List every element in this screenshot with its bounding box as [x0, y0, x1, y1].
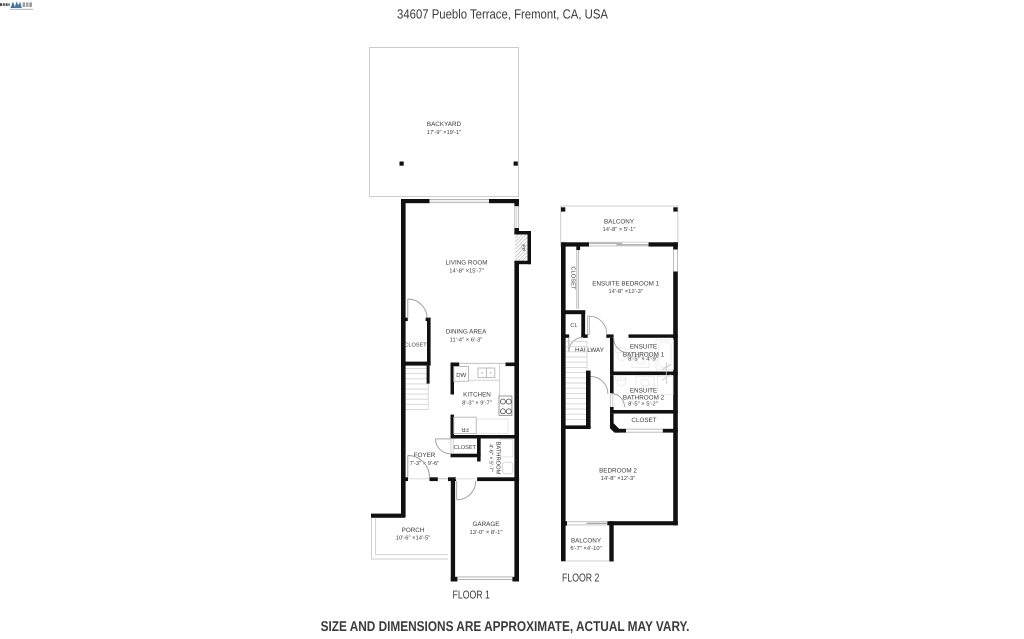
svg-text:DW: DW: [456, 372, 466, 379]
svg-text:BATHROOM 2: BATHROOM 2: [623, 394, 665, 401]
svg-text:FP: FP: [519, 244, 525, 251]
svg-text:FLOOR 1: FLOOR 1: [453, 590, 490, 602]
svg-text:FR: FR: [461, 426, 468, 432]
svg-text:LIVING ROOM: LIVING ROOM: [446, 260, 488, 267]
svg-text:14'-8" ×12'-3": 14'-8" ×12'-3": [601, 475, 636, 482]
svg-text:6'-7" ×4'-10": 6'-7" ×4'-10": [570, 545, 601, 552]
svg-text:CLOSET: CLOSET: [631, 417, 656, 424]
svg-text:BALCONY: BALCONY: [571, 537, 602, 544]
svg-text:FLOOR 2: FLOOR 2: [562, 573, 599, 585]
svg-text:KITCHEN: KITCHEN: [463, 392, 491, 399]
svg-text:CLOSET: CLOSET: [404, 342, 427, 348]
svg-text:DINING AREA: DINING AREA: [446, 329, 487, 336]
svg-text:ENSUITE: ENSUITE: [630, 344, 657, 351]
svg-text:ENSUITE BEDROOM 1: ENSUITE BEDROOM 1: [592, 280, 659, 287]
svg-text:BALCONY: BALCONY: [604, 219, 635, 226]
svg-text:BATHROOM: BATHROOM: [495, 441, 502, 474]
svg-text:PORCH: PORCH: [402, 527, 425, 534]
svg-text:14'-8" × 5'-1": 14'-8" × 5'-1": [603, 226, 636, 233]
svg-text:14'-8" ×15'-7": 14'-8" ×15'-7": [449, 268, 484, 275]
svg-text:BEDROOM 2: BEDROOM 2: [599, 467, 637, 474]
svg-text:13'-0" × 8'-1": 13'-0" × 8'-1": [470, 529, 503, 536]
svg-text:BACKYARD: BACKYARD: [427, 121, 462, 128]
svg-text:8'-5" × 4'-9": 8'-5" × 4'-9": [628, 356, 658, 363]
svg-text:CL: CL: [570, 323, 577, 329]
svg-text:34607 Pueblo Terrace, Fremont,: 34607 Pueblo Terrace, Fremont, CA, USA: [397, 7, 608, 22]
svg-text:HALLWAY: HALLWAY: [575, 347, 605, 354]
svg-text:GARAGE: GARAGE: [473, 521, 500, 528]
svg-text:10'-6" ×14'-5": 10'-6" ×14'-5": [396, 535, 431, 542]
svg-text:11'-4" × 6'-3": 11'-4" × 6'-3": [450, 336, 483, 343]
svg-text:14'-8" ×12'-3": 14'-8" ×12'-3": [608, 288, 643, 295]
svg-text:CLOSET: CLOSET: [570, 266, 577, 290]
svg-text:17'-9" ×19'-1": 17'-9" ×19'-1": [427, 129, 462, 136]
svg-text:CLOSET: CLOSET: [454, 445, 477, 451]
svg-text:8'-5" × 5'-2": 8'-5" × 5'-2": [628, 401, 658, 408]
svg-text:4'-6" × 5'-7": 4'-6" × 5'-7": [487, 444, 493, 472]
svg-text:8'-3" × 9'-7": 8'-3" × 9'-7": [462, 400, 492, 407]
svg-text:SIZE AND DIMENSIONS ARE APPROX: SIZE AND DIMENSIONS ARE APPROXIMATE, ACT…: [321, 619, 690, 635]
